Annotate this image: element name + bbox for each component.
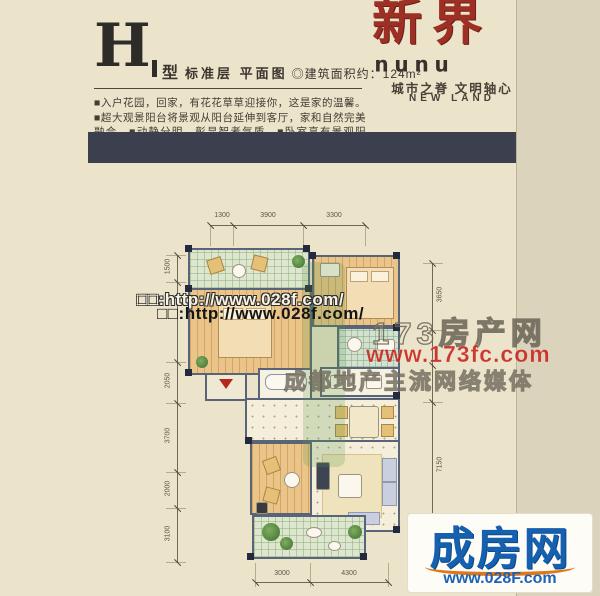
- dim-label-top: 3300: [314, 212, 354, 219]
- dim-label-bottom: 3000: [262, 570, 302, 577]
- dining-table: [349, 406, 379, 438]
- footer-logo-url: www.028F.com: [408, 570, 592, 588]
- stone: [328, 541, 341, 551]
- room-balcony-top: [188, 248, 310, 290]
- plan-letter: H: [94, 16, 151, 76]
- sofa: [382, 458, 397, 482]
- plant: [196, 356, 208, 368]
- plant: [262, 523, 280, 541]
- brand-logo-en: nunu: [374, 52, 524, 77]
- dim-label-top: 3900: [248, 212, 288, 219]
- wall-block: [247, 553, 254, 560]
- dim-label-left: 1500: [165, 252, 172, 282]
- wall-block: [185, 369, 192, 376]
- plan-type-label: 型: [162, 65, 179, 82]
- title-divider-bar: [152, 60, 157, 77]
- dim-ext: [210, 226, 211, 246]
- chair: [206, 256, 225, 275]
- wall-block: [393, 252, 400, 259]
- divider-bar: [88, 132, 516, 163]
- toilet: [347, 337, 362, 352]
- plan-title-text: 标准层 平面图: [185, 66, 288, 81]
- table: [232, 264, 246, 278]
- dim-label-left: 2000: [165, 474, 172, 504]
- dim-line-right: [432, 263, 433, 530]
- chair: [250, 254, 268, 272]
- sofa: [382, 482, 397, 506]
- watermark-url-solid: □□:http://www.028f.com/: [157, 304, 364, 324]
- stool: [256, 502, 268, 514]
- wall-block: [303, 245, 310, 252]
- plant: [280, 537, 293, 550]
- dim-ext: [365, 226, 366, 246]
- chengfangwang-logo: 成房网 www.028F.com: [408, 514, 592, 592]
- pillow: [350, 271, 368, 282]
- dim-label-top: 1300: [202, 212, 242, 219]
- title-rule: [94, 88, 362, 89]
- brand-logo-cn: 新界: [372, 0, 522, 50]
- dim-ext: [303, 226, 304, 246]
- chair: [262, 456, 281, 475]
- room-balcony-bottom: [252, 515, 366, 559]
- table: [284, 472, 300, 488]
- wall-block: [393, 526, 400, 533]
- wall-block: [245, 437, 252, 444]
- wall-block: [360, 553, 367, 560]
- wall-block: [309, 252, 316, 259]
- flyer-page: H 型标准层 平面图◎建筑面积约：124m² ■入户花园，回家，有花花草草迎接你…: [0, 0, 600, 596]
- dim-line-bottom: [255, 582, 389, 583]
- dim-label-bottom: 4300: [329, 570, 369, 577]
- brand-slogan-en: NEW LAND: [372, 93, 532, 104]
- entry-marker-icon: [219, 379, 233, 389]
- chair: [381, 424, 394, 437]
- chair: [381, 406, 394, 419]
- dim-label-left: 3700: [165, 421, 172, 451]
- dim-ext: [233, 226, 234, 246]
- dim-label-right: 7150: [437, 450, 444, 480]
- dim-label-right: 3650: [437, 280, 444, 310]
- plant: [348, 525, 362, 539]
- pillow: [371, 271, 389, 282]
- stone: [306, 527, 322, 538]
- dim-label-left: 3100: [165, 519, 172, 549]
- watermark-portal-slogan: 成都地产主流网络媒体: [284, 364, 534, 396]
- wall-block: [185, 245, 192, 252]
- dim-label-left: 2050: [165, 366, 172, 396]
- coffee-table: [338, 474, 362, 498]
